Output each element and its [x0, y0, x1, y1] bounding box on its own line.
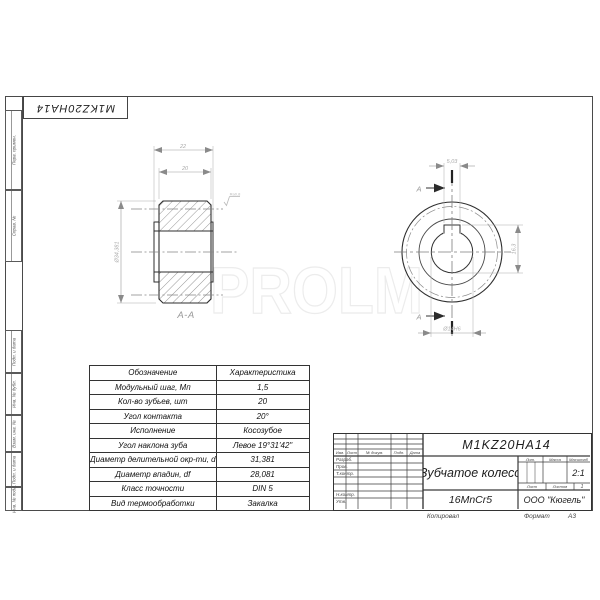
row-label: Диаметр впадин, df — [90, 467, 217, 482]
format-note: Формат А3 — [524, 512, 576, 521]
roughness-value: Ra0,8 — [230, 192, 241, 197]
table-header-row: Обозначение Характеристика — [90, 366, 310, 381]
role-razrab: Разраб. — [334, 456, 360, 463]
table-row: Кол-во зубьев, шт20 — [90, 395, 310, 410]
header-designation: Обозначение — [90, 366, 217, 381]
roughness-check-icon — [224, 197, 230, 206]
header-characteristic: Характеристика — [216, 366, 309, 381]
row-label: Исполнение — [90, 424, 217, 439]
row-value: Косозубое — [216, 424, 309, 439]
role-utv: Утв. — [334, 498, 360, 505]
row-value: Левое 19°31'42" — [216, 438, 309, 453]
gear-spec-table: Обозначение Характеристика Модульный шаг… — [89, 365, 310, 511]
dim-bore: Ø14H6 — [442, 327, 461, 333]
label-lit: Лит. — [518, 456, 543, 462]
label-massa: Масса — [543, 456, 567, 462]
drawing-sheet: { "watermark": "PROLM", "corner_designat… — [0, 0, 600, 600]
row-label: Модульный шаг, Мп — [90, 380, 217, 395]
row-value: DIN 5 — [216, 482, 309, 497]
format-label: Формат — [524, 513, 550, 520]
table-row: ИсполнениеКосозубое — [90, 424, 310, 439]
dim-outer-diameter: Ø34,381 — [115, 241, 121, 263]
table-row: Угол контакта20° — [90, 409, 310, 424]
cut-letter-bottom: А — [415, 313, 421, 322]
row-value: 20° — [216, 409, 309, 424]
row-value: 31,381 — [216, 453, 309, 468]
table-row: Класс точностиDIN 5 — [90, 482, 310, 497]
scale-value: 2:1 — [567, 462, 590, 483]
company: ООО "Кюгель" — [518, 490, 590, 509]
listov-value: 1 — [574, 483, 590, 490]
role-tkontr: Т.контр. — [334, 470, 360, 477]
table-row: Диаметр делительной окр-ти, d31,381 — [90, 453, 310, 468]
table-row: Вид термообработкиЗакалка — [90, 496, 310, 511]
dim-overall-width: 22 — [179, 144, 186, 150]
label-list: Лист — [518, 483, 546, 490]
hatch-top-rim — [159, 201, 211, 231]
roughness-mark: Ra0,8 — [224, 192, 241, 206]
table-row: Модульный шаг, Мп1,5 — [90, 380, 310, 395]
section-label: А-А — [176, 310, 194, 321]
row-label: Вид термообработки — [90, 496, 217, 511]
role-nkontr: Н.контр. — [334, 491, 360, 498]
row-value: 28,081 — [216, 467, 309, 482]
row-value: Закалка — [216, 496, 309, 511]
part-name: Зубчатое колесо — [423, 456, 518, 490]
role-prov: Пров. — [334, 463, 360, 470]
hatch-bottom-rim — [159, 272, 211, 303]
table-row: Угол наклона зубаЛевое 19°31'42" — [90, 438, 310, 453]
format-value: А3 — [568, 513, 576, 520]
row-value: 20 — [216, 395, 309, 410]
row-label: Угол наклона зуба — [90, 438, 217, 453]
col-ndokum: № докум. — [358, 449, 391, 456]
col-podp: Подп. — [391, 449, 407, 456]
table-row: Диаметр впадин, df28,081 — [90, 467, 310, 482]
title-block: Изм. Лист № докум. Подп. Дата Разраб. Пр… — [333, 433, 592, 511]
material: 16MnCr5 — [423, 490, 518, 509]
dim-keyway-width: 5,03 — [447, 159, 459, 165]
row-value: 1,5 — [216, 380, 309, 395]
col-izm: Изм. — [334, 449, 346, 456]
copied-label: Копировал — [398, 512, 488, 521]
watermark-text: PROLM — [210, 253, 423, 327]
label-listov: Листов — [546, 483, 574, 490]
row-label: Угол контакта — [90, 409, 217, 424]
dim-keyway-depth: 16,3 — [512, 243, 518, 255]
title-designation: M1KZ20HA14 — [423, 434, 590, 456]
row-label: Кол-во зубьев, шт — [90, 395, 217, 410]
col-list: Лист — [346, 449, 358, 456]
cut-letter-top: А — [415, 185, 421, 194]
row-label: Класс точности — [90, 482, 217, 497]
col-data: Дата — [407, 449, 423, 456]
dim-face-width: 20 — [181, 166, 189, 172]
row-label: Диаметр делительной окр-ти, d — [90, 453, 217, 468]
